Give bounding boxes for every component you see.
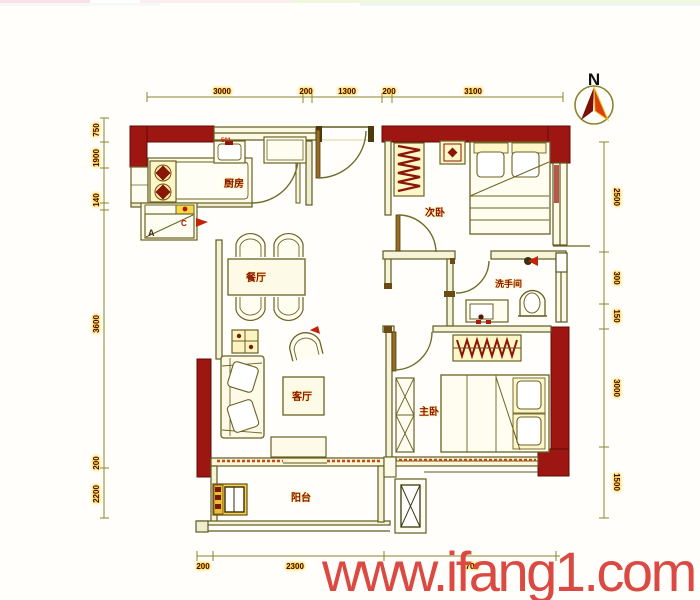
svg-text:客厅: 客厅	[291, 390, 312, 403]
svg-text:150: 150	[612, 309, 621, 323]
svg-text:1900: 1900	[92, 149, 101, 167]
svg-text:1300: 1300	[338, 87, 356, 96]
svg-text:2300: 2300	[286, 562, 304, 571]
svg-text:200: 200	[299, 87, 313, 96]
svg-text:200: 200	[92, 456, 101, 470]
svg-text:主卧: 主卧	[419, 405, 439, 418]
svg-text:www.ifang1.com: www.ifang1.com	[321, 540, 695, 600]
svg-text:1500: 1500	[612, 473, 621, 491]
svg-text:N: N	[588, 70, 600, 89]
svg-text:A: A	[148, 228, 155, 238]
svg-text:2500: 2500	[612, 188, 621, 206]
svg-text:3600: 3600	[92, 315, 101, 333]
svg-text:餐厅: 餐厅	[245, 271, 266, 284]
svg-text:次卧: 次卧	[425, 206, 445, 219]
svg-text:501: 501	[221, 138, 232, 144]
svg-text:200: 200	[196, 562, 210, 571]
svg-text:3100: 3100	[464, 87, 482, 96]
svg-text:200: 200	[382, 87, 396, 96]
svg-text:140: 140	[92, 193, 101, 207]
svg-text:阳台: 阳台	[291, 491, 311, 504]
svg-text:750: 750	[92, 123, 101, 137]
svg-text:300: 300	[612, 271, 621, 285]
svg-text:厨房: 厨房	[224, 177, 244, 190]
svg-text:洗手间: 洗手间	[495, 278, 522, 289]
svg-text:3000: 3000	[612, 379, 621, 397]
svg-text:C: C	[181, 219, 187, 228]
svg-text:2200: 2200	[92, 485, 101, 503]
svg-text:3000: 3000	[213, 87, 231, 96]
